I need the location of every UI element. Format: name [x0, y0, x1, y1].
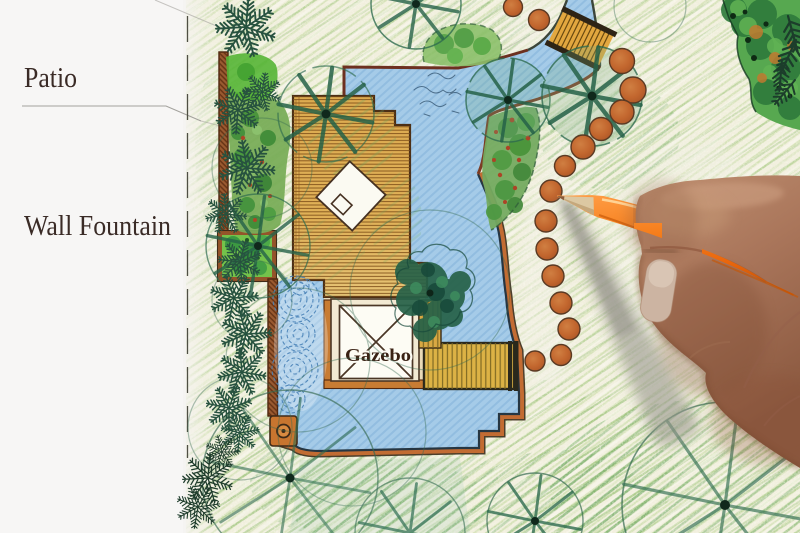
- svg-text:Wall Fountain: Wall Fountain: [24, 210, 171, 242]
- svg-text:Patio: Patio: [24, 62, 77, 94]
- svg-text:Gazebo: Gazebo: [345, 345, 411, 365]
